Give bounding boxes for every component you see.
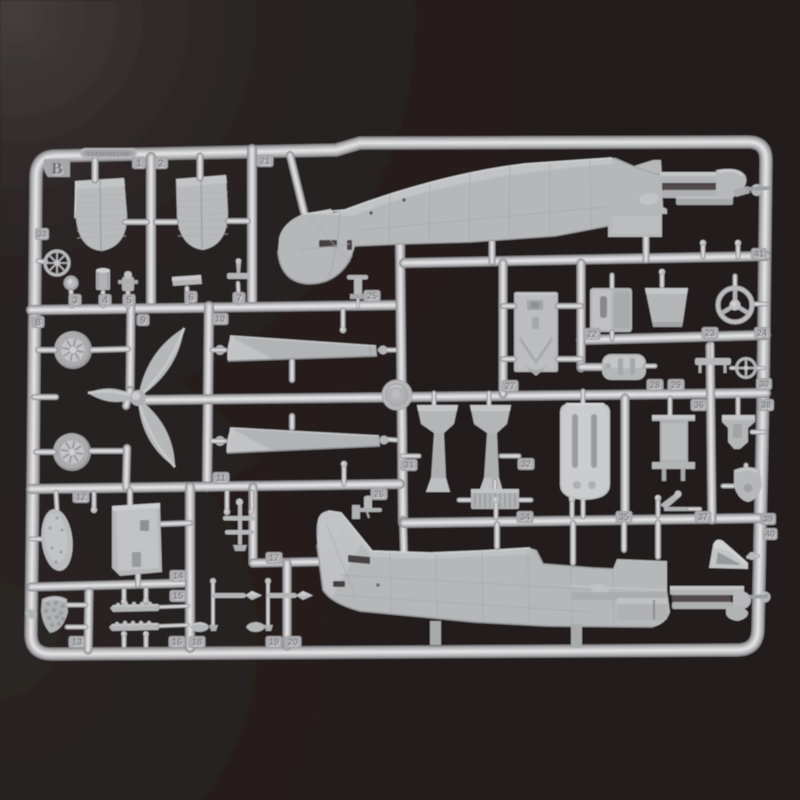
svg-text:19: 19 <box>269 637 279 647</box>
svg-text:9: 9 <box>140 316 146 327</box>
svg-text:18: 18 <box>192 637 202 647</box>
svg-text:37: 37 <box>698 512 708 522</box>
svg-text:28: 28 <box>650 380 660 390</box>
svg-text:16: 16 <box>172 637 182 647</box>
svg-text:34: 34 <box>520 512 530 522</box>
svg-text:B: B <box>51 159 62 178</box>
svg-text:8: 8 <box>35 318 41 329</box>
svg-text:32: 32 <box>521 459 531 469</box>
svg-text:C17/31/21E1700: C17/31/21E1700 <box>87 152 128 158</box>
svg-text:26: 26 <box>374 489 384 499</box>
svg-text:39: 39 <box>763 514 773 524</box>
svg-text:21: 21 <box>260 156 270 166</box>
svg-text:7: 7 <box>236 294 242 305</box>
svg-text:38: 38 <box>761 400 771 410</box>
svg-text:12: 12 <box>76 492 86 502</box>
svg-text:31: 31 <box>404 460 414 470</box>
svg-text:14: 14 <box>173 571 183 581</box>
svg-text:30: 30 <box>759 379 769 389</box>
svg-text:24: 24 <box>757 328 767 338</box>
svg-text:6: 6 <box>188 293 194 304</box>
svg-text:3: 3 <box>72 296 78 307</box>
svg-text:17: 17 <box>269 553 279 563</box>
svg-text:40: 40 <box>765 529 775 539</box>
svg-text:36: 36 <box>694 400 704 410</box>
svg-text:11: 11 <box>216 473 226 483</box>
svg-text:41: 41 <box>754 249 764 259</box>
svg-text:25: 25 <box>367 291 377 301</box>
svg-text:29: 29 <box>671 380 681 390</box>
svg-text:23: 23 <box>705 328 715 338</box>
svg-text:27: 27 <box>505 381 515 391</box>
svg-text:13: 13 <box>72 637 82 647</box>
svg-text:4: 4 <box>102 296 108 307</box>
svg-text:20: 20 <box>288 637 298 647</box>
svg-text:1: 1 <box>136 159 142 170</box>
svg-text:15: 15 <box>173 591 183 601</box>
svg-text:5: 5 <box>126 296 132 307</box>
svg-text:2: 2 <box>158 159 164 170</box>
svg-text:10: 10 <box>215 314 225 324</box>
svg-text:33: 33 <box>38 230 47 239</box>
svg-text:22: 22 <box>587 329 597 339</box>
